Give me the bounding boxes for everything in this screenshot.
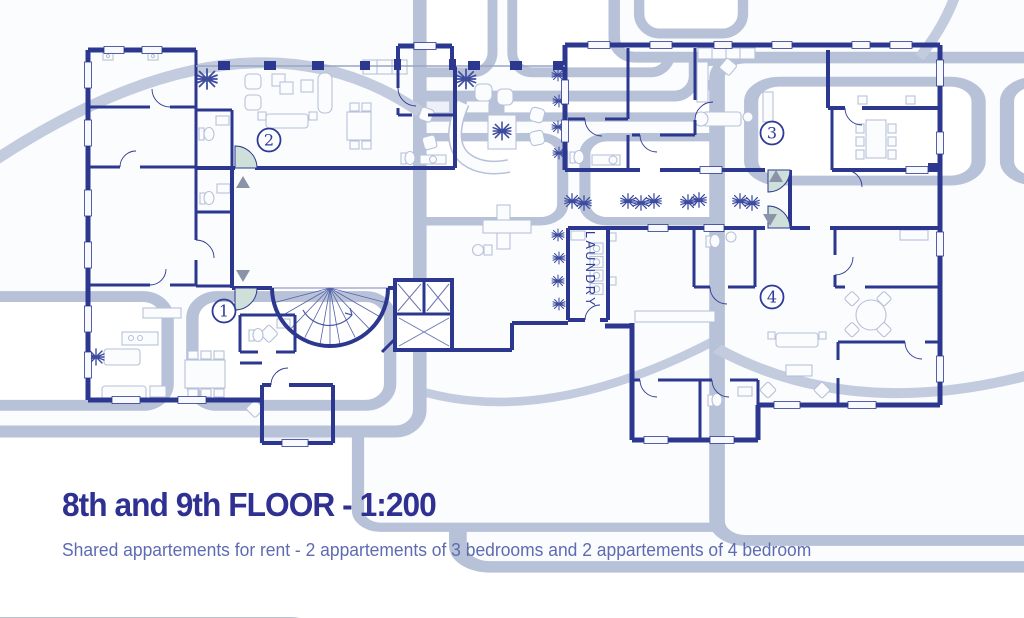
plant-icon bbox=[197, 69, 217, 89]
bed bbox=[614, 0, 1024, 57]
svg-text:3: 3 bbox=[767, 124, 777, 143]
elevators bbox=[395, 280, 452, 350]
svg-text:4: 4 bbox=[767, 288, 777, 307]
svg-text:2: 2 bbox=[264, 131, 274, 150]
page-title: 8th and 9th FLOOR - 1:200 bbox=[62, 486, 436, 524]
plant-icon bbox=[493, 122, 511, 140]
plant-icon bbox=[456, 69, 475, 88]
page-subtitle: Shared appartements for rent - 2 apparte… bbox=[62, 540, 811, 561]
furniture-layer bbox=[0, 0, 1024, 618]
floor-plan-drawing: 1 2 3 4 LAUNDRY bbox=[0, 0, 1024, 618]
laundry-label: LAUNDRY bbox=[583, 231, 597, 308]
svg-text:1: 1 bbox=[219, 302, 229, 321]
floor-plan-page: 1 2 3 4 LAUNDRY 8th and 9th FLOOR - 1:20… bbox=[0, 0, 1024, 618]
